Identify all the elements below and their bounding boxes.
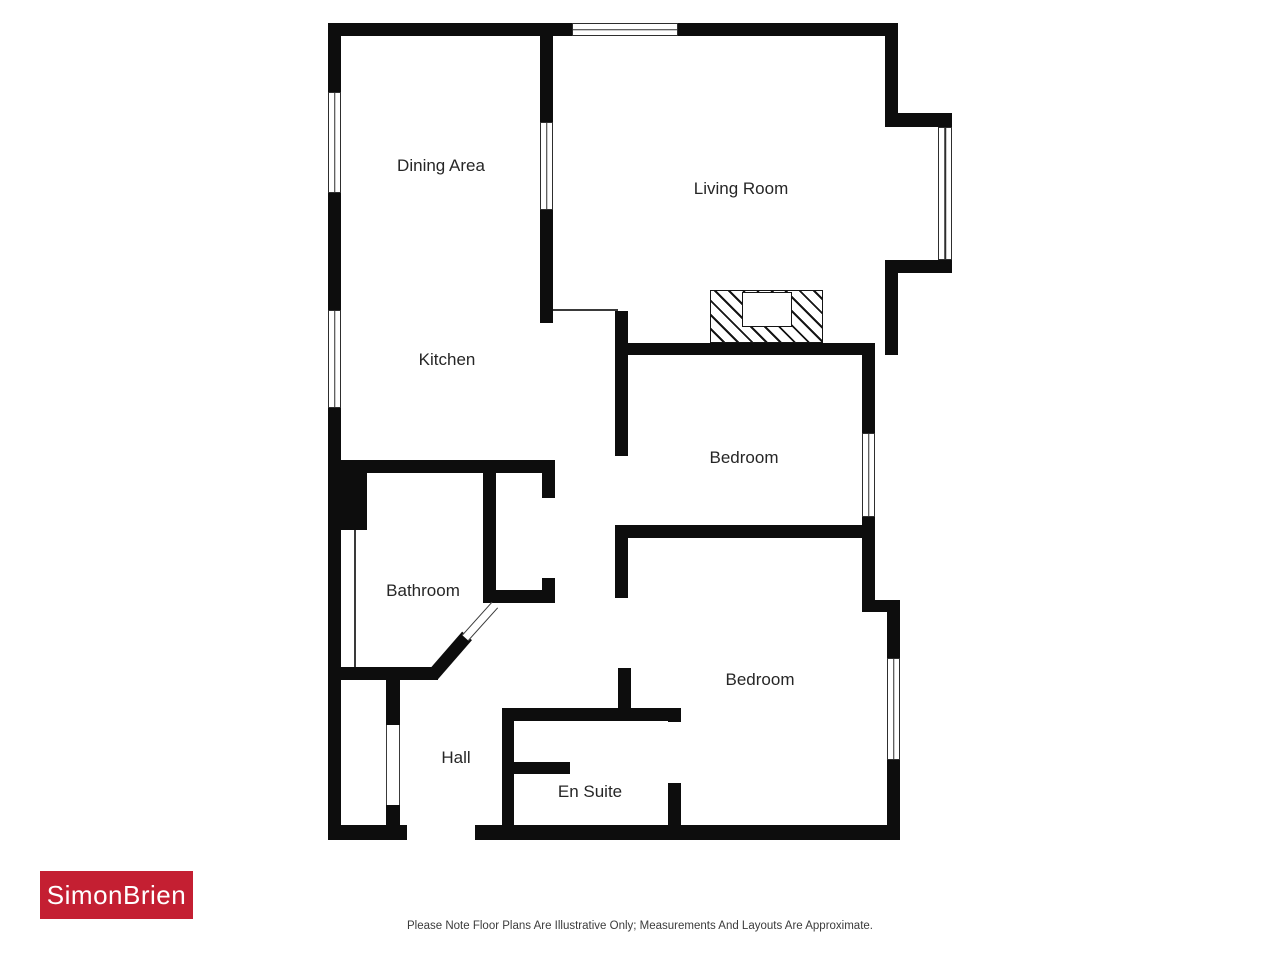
window	[328, 92, 341, 193]
window	[862, 433, 875, 517]
wall-segment	[502, 762, 570, 774]
floorplan-page: Dining Area Kitchen Living Room Bedroom …	[0, 0, 1280, 960]
window	[328, 310, 341, 408]
agency-logo: SimonBrien	[40, 871, 193, 919]
door-bathroom	[462, 602, 498, 641]
window	[938, 127, 952, 260]
window	[887, 658, 900, 760]
room-label-en-suite: En Suite	[558, 782, 622, 802]
wall-segment	[475, 825, 900, 840]
wall-segment	[540, 23, 553, 122]
pane-line	[354, 530, 356, 668]
wall-segment	[502, 708, 680, 721]
wall-segment	[540, 210, 553, 323]
room-label-living-room: Living Room	[694, 179, 789, 199]
wall-segment	[628, 343, 875, 355]
wall-segment	[386, 678, 400, 725]
wall-segment	[887, 600, 900, 658]
window	[572, 23, 678, 36]
wall-segment	[483, 590, 555, 603]
window	[540, 122, 553, 210]
wall-segment	[885, 23, 898, 115]
wall-segment	[328, 460, 555, 473]
fireplace-opening	[742, 292, 792, 327]
opening-line	[553, 309, 618, 311]
wall-segment	[615, 525, 872, 538]
wall-segment	[887, 760, 900, 840]
disclaimer-text: Please Note Floor Plans Are Illustrative…	[0, 920, 1280, 932]
wall-segment	[615, 311, 628, 456]
wall-segment	[328, 193, 341, 310]
wall-segment	[885, 273, 898, 355]
room-label-hall: Hall	[441, 748, 470, 768]
wall-segment	[328, 667, 438, 680]
wall-segment	[386, 805, 400, 833]
room-label-dining-area: Dining Area	[397, 156, 485, 176]
wall-segment	[542, 473, 555, 498]
room-label-bedroom-2: Bedroom	[726, 670, 795, 690]
room-label-bedroom-1: Bedroom	[710, 448, 779, 468]
wall-segment	[615, 525, 628, 598]
room-label-kitchen: Kitchen	[419, 350, 476, 370]
wall-segment	[483, 473, 496, 603]
door-hall-cupboard	[386, 725, 400, 805]
wall-segment	[668, 708, 681, 722]
room-label-bathroom: Bathroom	[386, 581, 460, 601]
wall-segment	[328, 23, 572, 36]
wall-segment	[328, 23, 341, 92]
wall-segment	[862, 343, 875, 433]
wall-segment	[885, 260, 952, 273]
wall-segment	[678, 23, 898, 36]
wall-segment	[668, 783, 681, 827]
wall-segment	[885, 113, 952, 127]
agency-logo-text: SimonBrien	[47, 880, 186, 911]
wall-block	[328, 473, 367, 530]
